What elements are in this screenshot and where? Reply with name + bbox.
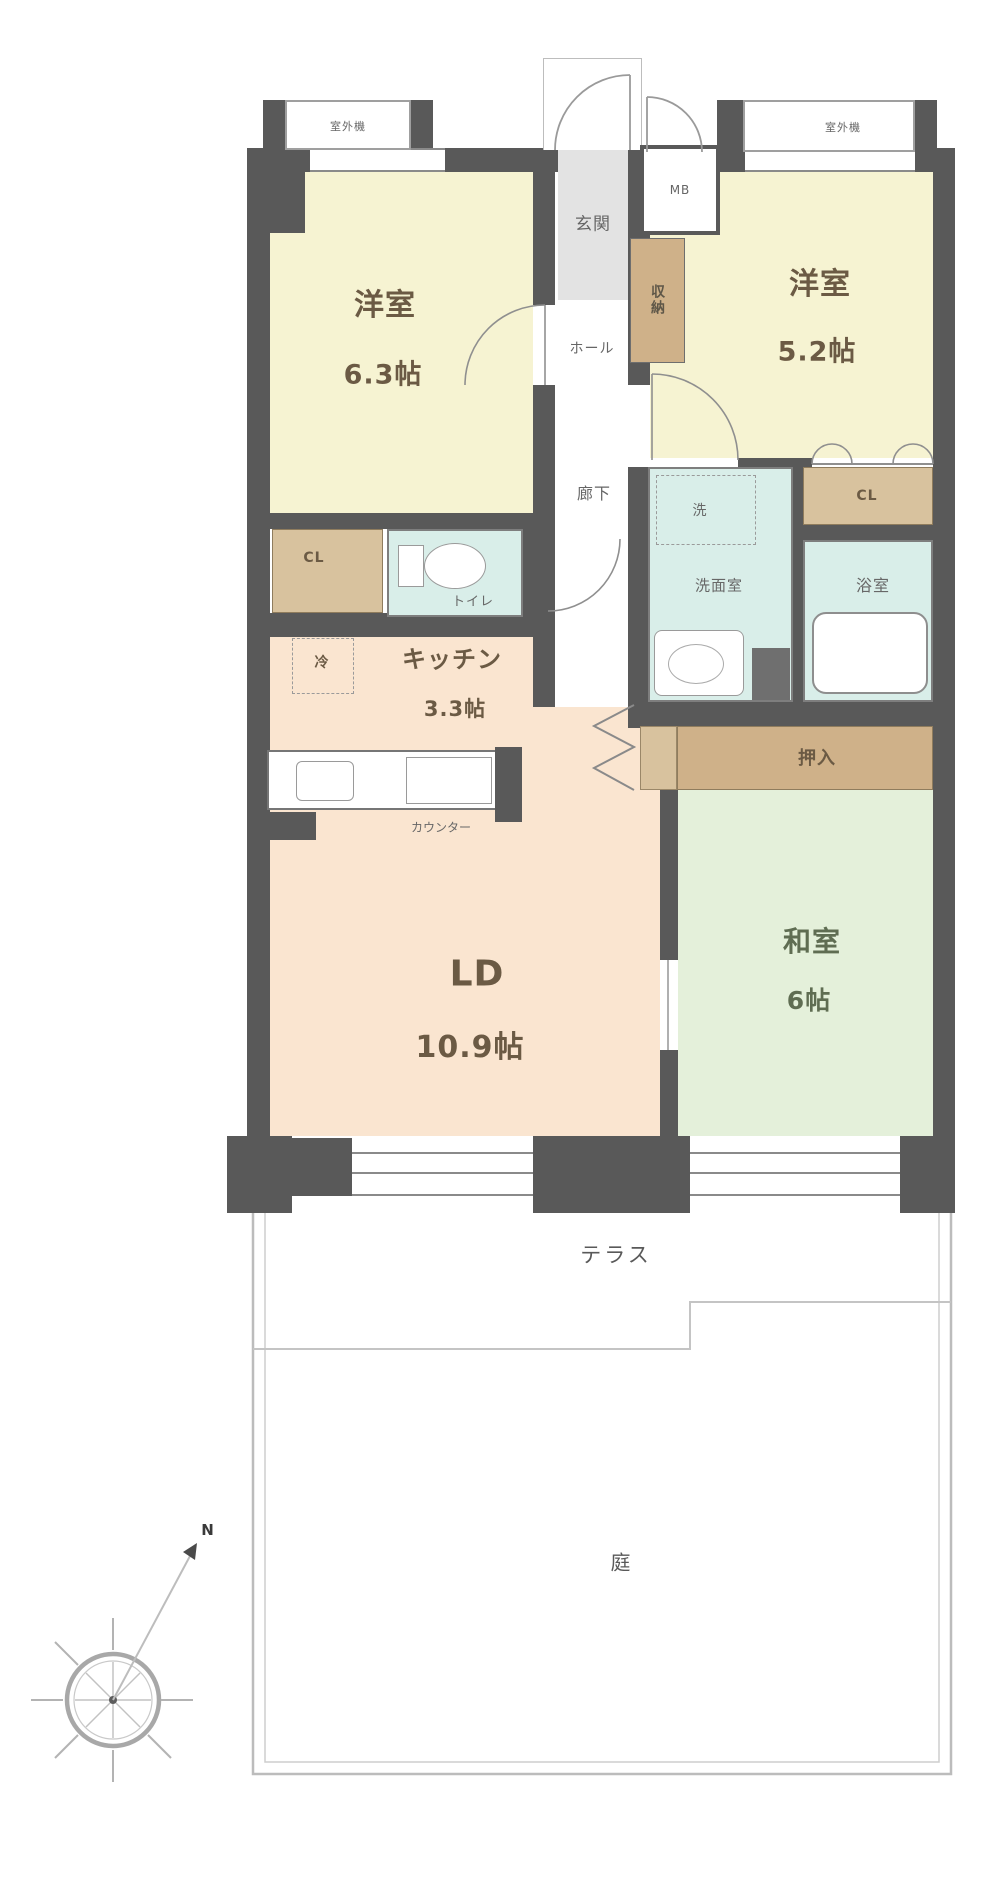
wall [445,148,558,172]
closet-label: CL [303,550,324,566]
washer-label: 洗 [693,500,708,520]
floor-plan: 洋室 6.3帖 洋室 5.2帖 キッチン 3.3帖 LD 10.9帖 和室 6帖… [0,0,1000,1885]
room-label: LD [450,954,505,995]
window [310,148,445,172]
counter-label: カウンター [411,819,471,836]
japanese-room-door [640,726,677,790]
room-size: 5.2帖 [778,330,857,369]
room-size: 6.3帖 [344,353,423,392]
window-line [352,1172,533,1174]
terrace-garden-outline [253,1213,951,1774]
balcony-divider [411,100,433,148]
wall [247,148,305,233]
compass-icon [31,1618,193,1782]
wall [900,1136,955,1213]
toilet-bowl [424,543,486,589]
sliding-door-opening [660,960,678,1050]
wall [533,1136,690,1213]
window-line [690,1172,900,1174]
wall [521,518,535,617]
north-label: N [201,1521,215,1539]
corridor-label: 廊下 [577,480,611,504]
wall [933,148,955,1138]
toilet-tank [398,545,424,587]
closet-label: CL [856,488,877,504]
north-arrow-icon [113,1543,197,1700]
kitchen-sink [296,761,354,801]
oshiire-label: 押入 [798,744,836,770]
bathroom-door [752,648,790,700]
closet-left [272,529,383,613]
balcony-divider [915,100,937,152]
terrace-label: テラス [580,1239,652,1269]
outdoor-unit-label: 室外機 [825,119,861,135]
room-label: 和室 [783,920,841,960]
room-size: 10.9帖 [415,1022,524,1066]
hall-label: ホール [570,338,615,358]
outdoor-unit-label: 室外機 [330,118,366,134]
wash-basin-bowl [668,644,724,684]
room-size: 6帖 [787,981,831,1017]
garden-label: 庭 [611,1547,634,1576]
wall [227,1136,292,1213]
washroom-label: 洗面室 [695,575,743,596]
balcony-divider [717,100,743,152]
room-size: 3.3帖 [424,693,486,723]
room-label: キッチン [402,640,502,675]
wall [533,172,555,305]
wall [628,467,648,707]
window [352,1152,533,1196]
bathtub [812,612,928,694]
toilet-label: トイレ [452,591,494,610]
fridge-label: 冷 [315,652,330,672]
storage-label: 収納 [647,284,667,316]
balcony-divider [263,100,285,148]
meter-box-label: MB [670,183,691,197]
bath-label: 浴室 [856,572,890,596]
wall [495,747,522,822]
kitchen-stove [406,757,492,804]
genkan-label: 玄関 [575,210,611,235]
room-label: 洋室 [354,280,416,324]
wall [803,523,933,540]
room-western-1 [270,172,533,513]
wall [247,148,270,1138]
wall [533,385,555,707]
wall [290,1138,352,1196]
wall [270,513,548,529]
wall [268,812,316,840]
room-label: 洋室 [789,259,851,303]
window [690,1152,900,1196]
sliding-door-line [667,960,669,1050]
wall [793,467,803,702]
wall [628,702,955,728]
entrance-porch [543,58,642,150]
room-japanese [678,790,933,1136]
